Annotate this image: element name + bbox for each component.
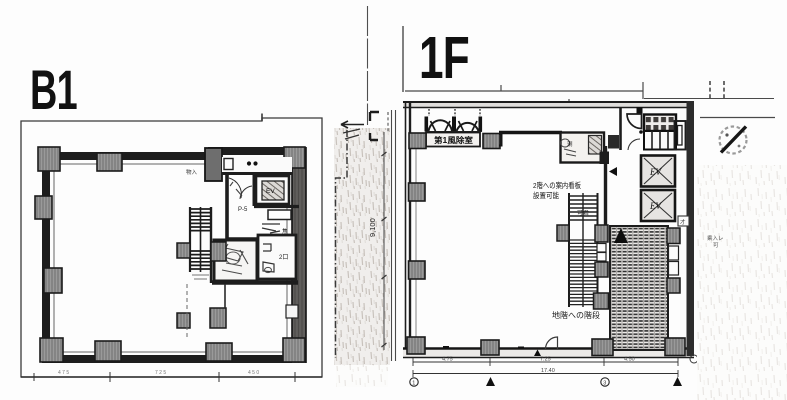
svg-text:P-5: P-5 xyxy=(238,207,248,213)
svg-text:EV: EV xyxy=(649,201,662,211)
svg-text:設置可能: 設置可能 xyxy=(533,191,560,200)
svg-text:地階への階段: 地階への階段 xyxy=(552,310,600,320)
svg-text:2口: 2口 xyxy=(279,254,288,261)
svg-text:2階への案内看板: 2階への案内看板 xyxy=(533,181,582,190)
svg-text:4 5 0: 4 5 0 xyxy=(248,370,259,376)
svg-text:4.75: 4.75 xyxy=(442,357,453,363)
svg-text:溂: 溂 xyxy=(567,140,573,148)
svg-text:可: 可 xyxy=(713,242,719,249)
svg-text:9,100: 9,100 xyxy=(368,218,377,237)
svg-text:3: 3 xyxy=(603,381,606,387)
svg-text:才: 才 xyxy=(680,218,686,226)
svg-text:1: 1 xyxy=(412,381,415,387)
svg-text:B1: B1 xyxy=(30,58,77,121)
svg-text:17.40: 17.40 xyxy=(541,368,555,374)
svg-text:物入: 物入 xyxy=(186,168,198,176)
svg-text:第1風除室: 第1風除室 xyxy=(434,135,473,145)
svg-text:4 7 5: 4 7 5 xyxy=(58,370,69,376)
svg-text:4.50: 4.50 xyxy=(624,357,635,363)
svg-text:7 2 5: 7 2 5 xyxy=(155,370,166,376)
svg-text:EV: EV xyxy=(266,188,275,195)
svg-text:EV: EV xyxy=(649,167,662,177)
svg-text:1F: 1F xyxy=(419,25,469,91)
svg-text:7.25: 7.25 xyxy=(540,357,551,363)
svg-text:乘入レ: 乘入レ xyxy=(707,234,724,242)
